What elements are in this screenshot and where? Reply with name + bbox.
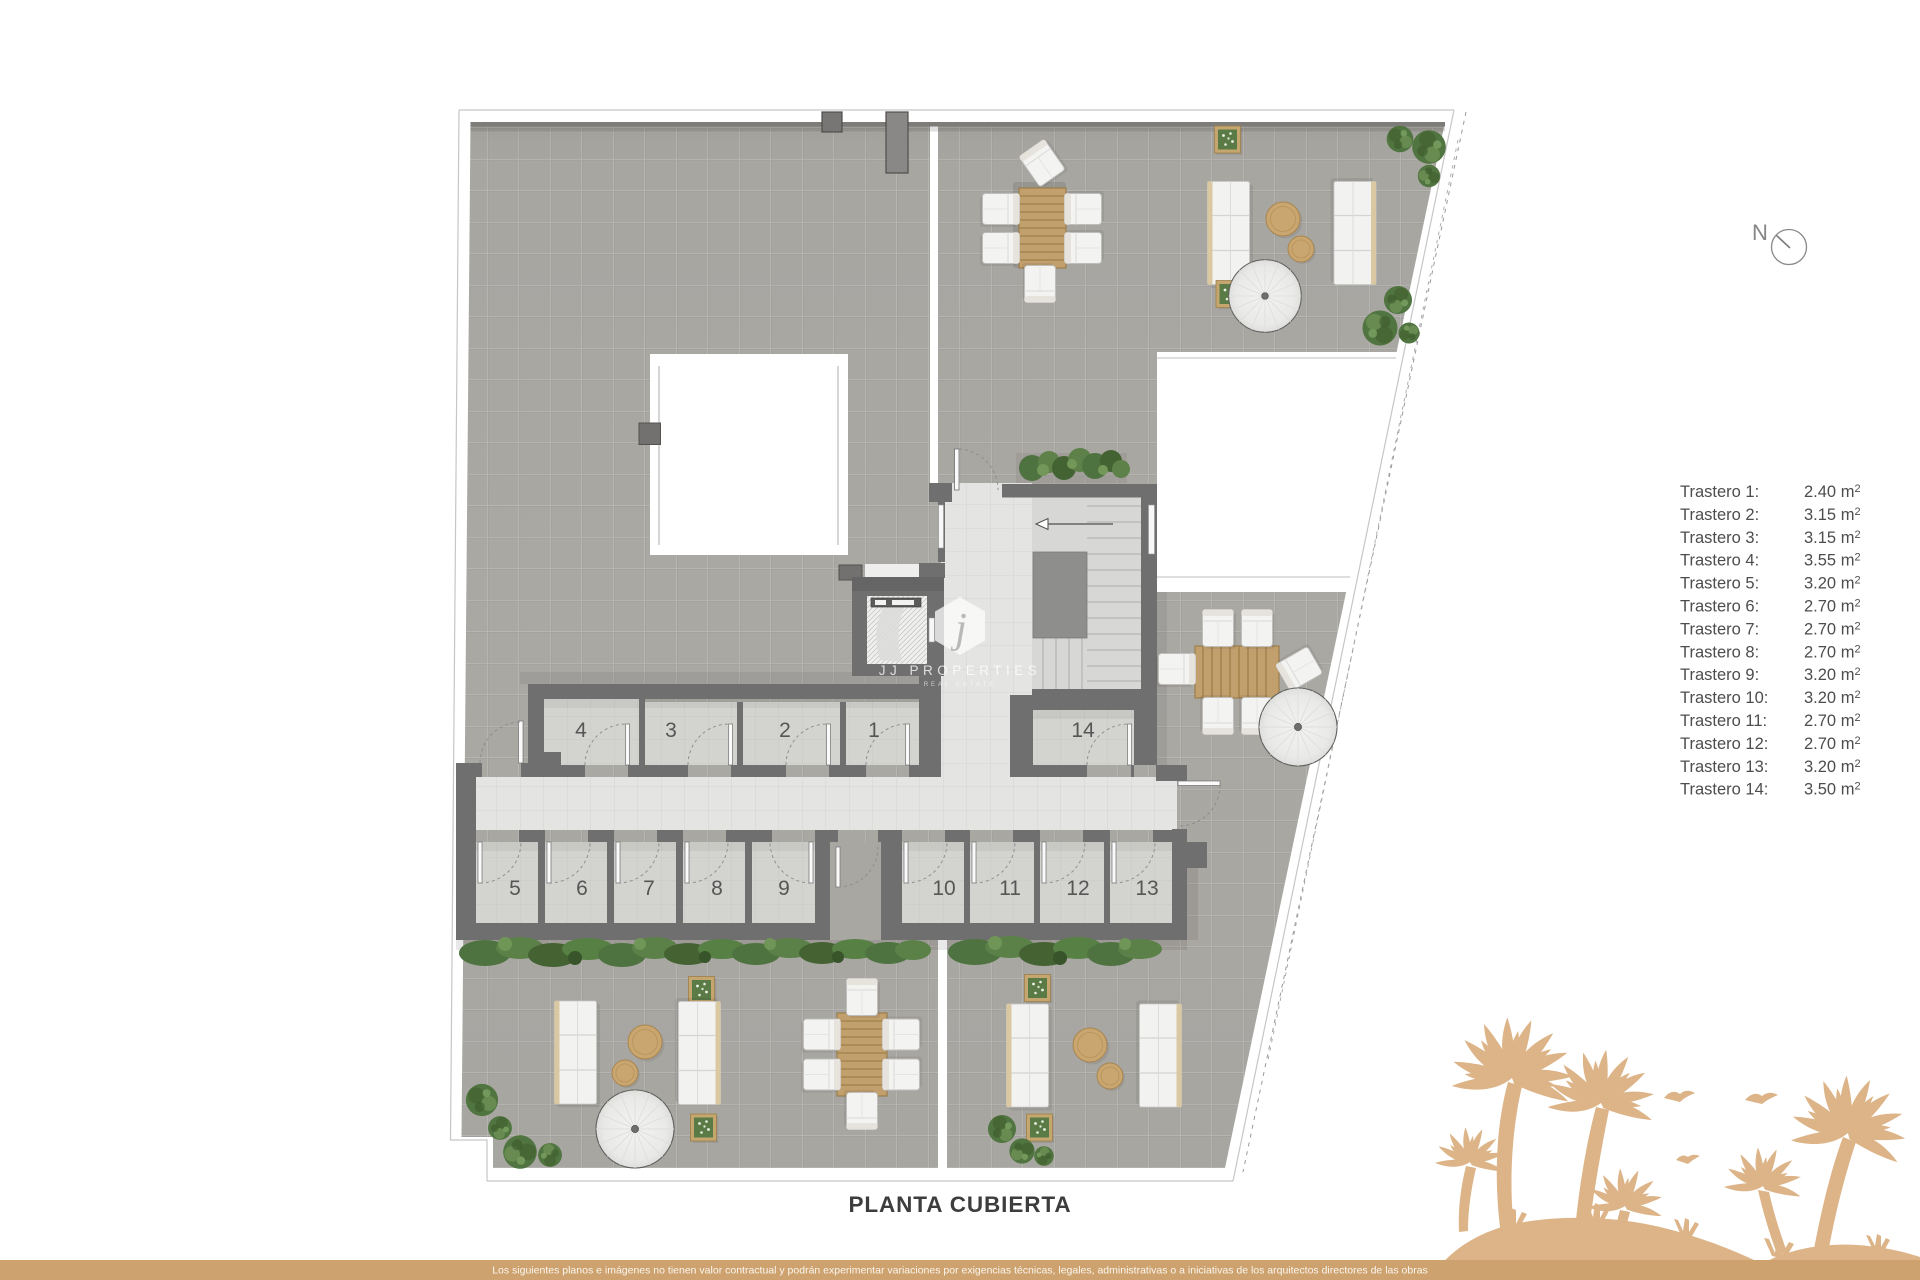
svg-text:3.20 m2: 3.20 m2 (1804, 689, 1861, 707)
svg-text:Los siguientes planos e imágen: Los siguientes planos e imágenes no tien… (492, 1265, 1428, 1277)
svg-text:13: 13 (1135, 877, 1158, 900)
svg-text:3.50 m2: 3.50 m2 (1804, 781, 1861, 799)
svg-text:9: 9 (778, 877, 790, 900)
svg-text:Trastero 10:: Trastero 10: (1680, 689, 1768, 707)
svg-text:1: 1 (868, 719, 880, 742)
svg-text:N: N (1752, 220, 1768, 245)
svg-text:2.70 m2: 2.70 m2 (1804, 620, 1861, 638)
svg-text:6: 6 (576, 877, 588, 900)
svg-text:JJ PROPERTIES: JJ PROPERTIES (879, 663, 1042, 678)
svg-text:14: 14 (1071, 719, 1095, 742)
svg-text:7: 7 (643, 877, 655, 900)
svg-text:Trastero 11:: Trastero 11: (1680, 712, 1767, 730)
svg-text:10: 10 (932, 877, 955, 900)
svg-text:12: 12 (1066, 877, 1089, 900)
svg-text:2.70 m2: 2.70 m2 (1804, 598, 1861, 616)
svg-text:3.20 m2: 3.20 m2 (1804, 575, 1861, 593)
svg-text:Trastero 8:: Trastero 8: (1680, 643, 1759, 661)
svg-text:2: 2 (779, 719, 791, 742)
svg-text:Trastero 14:: Trastero 14: (1680, 781, 1768, 799)
svg-text:3: 3 (665, 719, 677, 742)
svg-text:2.40 m2: 2.40 m2 (1804, 483, 1861, 501)
svg-text:Trastero 13:: Trastero 13: (1680, 758, 1768, 776)
svg-text:Trastero 2:: Trastero 2: (1680, 506, 1759, 524)
svg-text:2.70 m2: 2.70 m2 (1804, 712, 1861, 730)
svg-text:Trastero 1:: Trastero 1: (1680, 483, 1759, 501)
svg-text:Trastero 4:: Trastero 4: (1680, 552, 1759, 570)
svg-text:3.15 m2: 3.15 m2 (1804, 506, 1861, 524)
svg-text:11: 11 (999, 877, 1021, 900)
svg-text:Trastero 5:: Trastero 5: (1680, 575, 1759, 593)
svg-text:Trastero 9:: Trastero 9: (1680, 666, 1759, 684)
svg-text:3.15 m2: 3.15 m2 (1804, 529, 1861, 547)
svg-text:3.20 m2: 3.20 m2 (1804, 666, 1861, 684)
svg-text:3.55 m2: 3.55 m2 (1804, 552, 1861, 570)
svg-text:Trastero 6:: Trastero 6: (1680, 598, 1759, 616)
svg-text:Trastero 3:: Trastero 3: (1680, 529, 1759, 547)
svg-text:Trastero 12:: Trastero 12: (1680, 735, 1768, 753)
svg-text:PLANTA CUBIERTA: PLANTA CUBIERTA (848, 1192, 1071, 1217)
svg-text:8: 8 (711, 877, 723, 900)
svg-text:Trastero 7:: Trastero 7: (1680, 620, 1759, 638)
svg-text:3.20 m2: 3.20 m2 (1804, 758, 1861, 776)
svg-text:REAL ESTATE: REAL ESTATE (924, 682, 997, 688)
svg-text:2.70 m2: 2.70 m2 (1804, 735, 1861, 753)
svg-text:2.70 m2: 2.70 m2 (1804, 643, 1861, 661)
svg-text:5: 5 (509, 877, 521, 900)
svg-text:4: 4 (575, 719, 587, 742)
